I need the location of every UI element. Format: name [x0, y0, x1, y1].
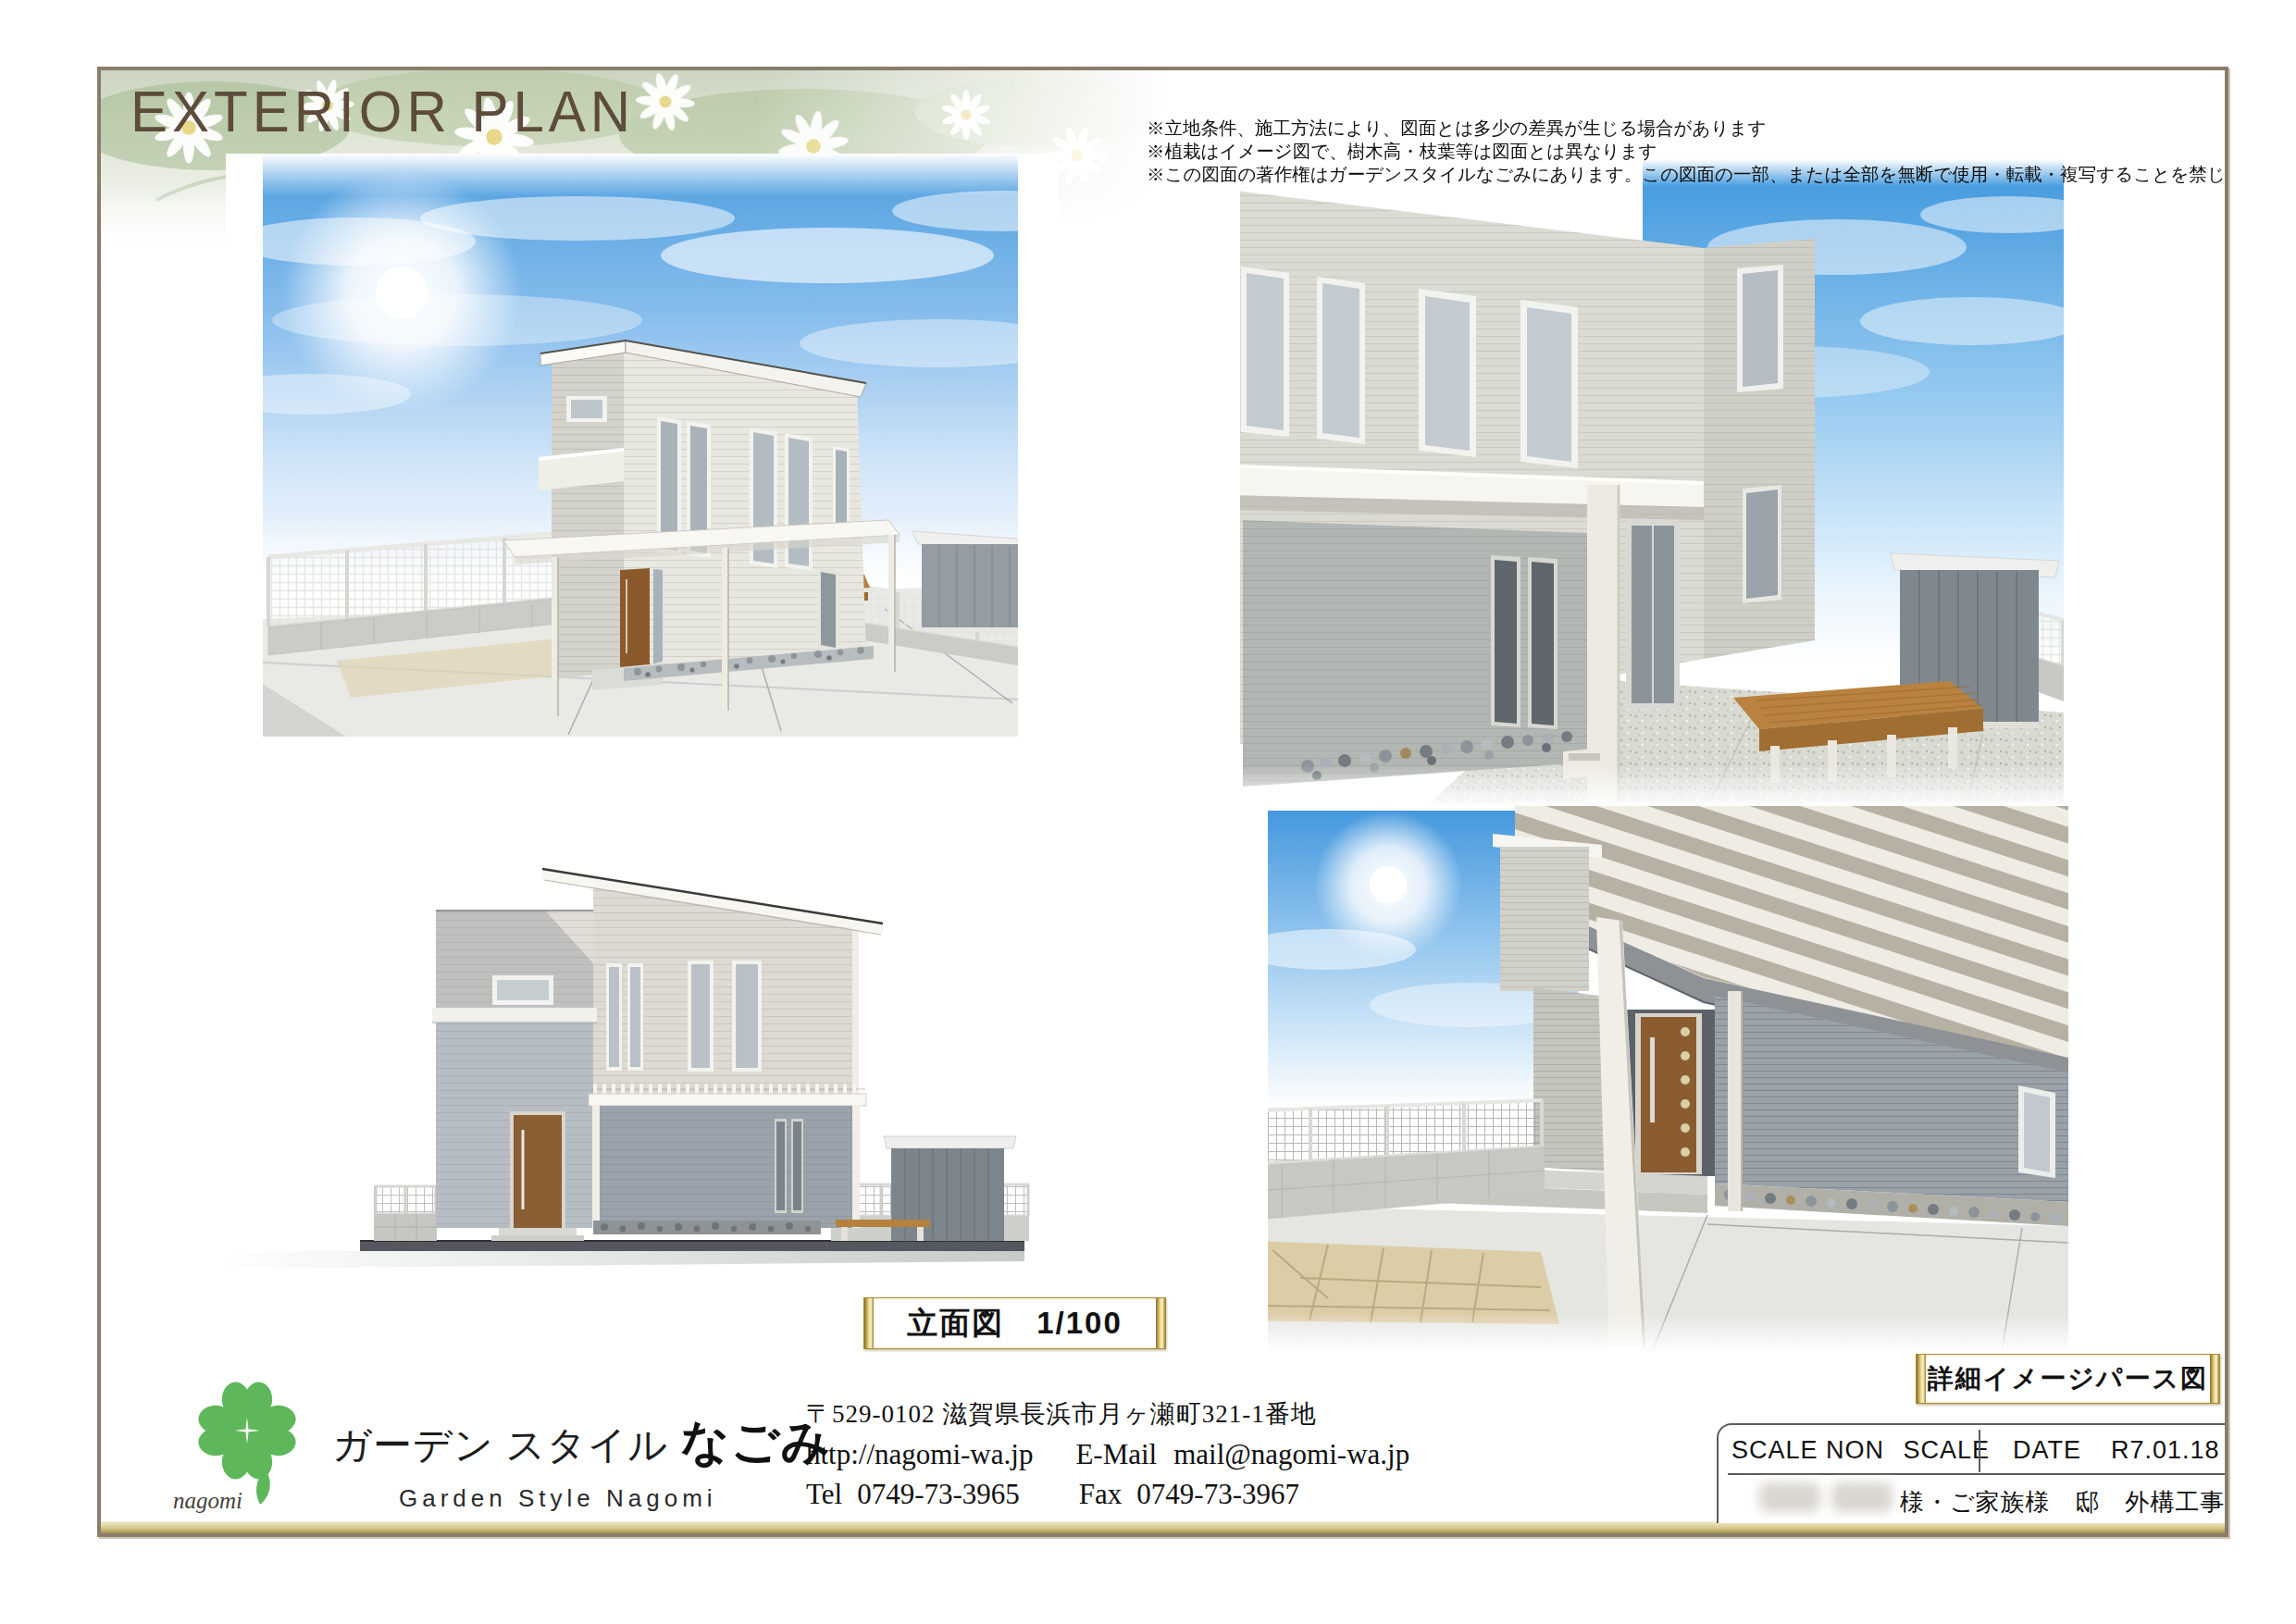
render-courtyard-perspective-art [1189, 159, 2064, 807]
render-overall-perspective-art [226, 154, 1059, 737]
disclaimer-line: ※植栽はイメージ図で、樹木高・枝葉等は図面とは異なります [1147, 140, 2228, 163]
title-block-divider [1979, 1430, 1980, 1472]
company-address: 〒529-0102 滋賀県長浜市月ヶ瀬町321-1番地 [806, 1397, 1409, 1431]
title-block-row-project: 様・ご家族様 邸 外構工事④ [1719, 1475, 2227, 1523]
gold-bar [2210, 1355, 2219, 1403]
redacted-client-name [1831, 1482, 1893, 1512]
fax-number: 0749-73-3967 [1136, 1478, 1299, 1510]
drawing-sheet: EXTERIOR PLAN ※立地条件、施工方法により、図面とは多少の差異が生じ… [97, 67, 2228, 1537]
title-block: SCALE NON SCALE DATE R7.01.18 様・ご家族様 邸 外… [1717, 1423, 2227, 1523]
page-title: EXTERIOR PLAN [130, 79, 635, 145]
company-name-jp-prefix: ガーデン スタイル [332, 1423, 680, 1467]
fax-label: Fax [1079, 1478, 1123, 1510]
pergola [589, 1084, 866, 1228]
detail-caption-box: 詳細イメージパース図 [1916, 1354, 2220, 1404]
project-name: 様・ご家族様 邸 外構工事④ [1900, 1486, 2228, 1519]
company-web-line: http://nagomi-wa.jpE-Mailmail@nagomi-wa.… [806, 1438, 1409, 1471]
company-phone-line: Tel0749-73-3965Fax0749-73-3967 [806, 1478, 1409, 1511]
clover-icon [193, 1377, 300, 1506]
scale-label: SCALE [1731, 1436, 1818, 1465]
render-entrance-detail [1189, 806, 2068, 1352]
redacted-client-name [1759, 1482, 1820, 1512]
house [539, 341, 874, 690]
scale-value: NON SCALE [1826, 1436, 1990, 1465]
company-email: mail@nagomi-wa.jp [1173, 1438, 1409, 1470]
company-logo: nagomi [166, 1371, 332, 1531]
ground [212, 1241, 1024, 1269]
disclaimer-line: ※立地条件、施工方法により、図面とは多少の差異が生じる場合があります [1147, 117, 2228, 140]
render-overall-perspective [226, 154, 1059, 737]
fence-left [374, 1186, 437, 1241]
render-elevation-art [212, 824, 1110, 1301]
gold-bar [1917, 1355, 1926, 1403]
company-name-jp: ガーデン スタイル なごみ [332, 1410, 831, 1475]
elevation-caption-box: 立面図 1/100 [863, 1297, 1166, 1349]
disclaimer-notes: ※立地条件、施工方法により、図面とは多少の差異が生じる場合があります ※植栽はイ… [1147, 117, 2228, 186]
email-label: E-Mail [1075, 1438, 1157, 1470]
company-name-en: Garden Style Nagomi [399, 1484, 831, 1513]
elevation-caption: 立面図 1/100 [907, 1303, 1123, 1345]
title-block-row-scale-date: SCALE NON SCALE DATE R7.01.18 [1719, 1425, 2227, 1473]
render-courtyard-perspective [1189, 159, 2064, 807]
house-elevation [432, 869, 883, 1241]
detail-caption: 詳細イメージパース図 [1928, 1361, 2208, 1396]
gold-bar [1156, 1298, 1165, 1348]
render-entrance-detail-art [1189, 806, 2068, 1352]
company-contact-block: 〒529-0102 滋賀県長浜市月ヶ瀬町321-1番地 http://nagom… [806, 1397, 1409, 1511]
company-name-block: ガーデン スタイル なごみ Garden Style Nagomi [332, 1410, 831, 1513]
logo-wordmark: nagomi [173, 1488, 242, 1513]
tel-number: 0749-73-3965 [857, 1478, 1020, 1510]
gold-bar [864, 1298, 874, 1348]
tel-label: Tel [806, 1478, 842, 1510]
company-website: http://nagomi-wa.jp [806, 1438, 1033, 1470]
date-value: R7.01.18 [2111, 1436, 2220, 1465]
date-label: DATE [2013, 1436, 2081, 1465]
flagstone-path [1226, 1241, 1559, 1324]
render-elevation [212, 824, 1110, 1301]
disclaimer-line: ※この図面の著作権はガーデンスタイルなごみにあります。この図面の一部、または全部… [1147, 163, 2228, 186]
